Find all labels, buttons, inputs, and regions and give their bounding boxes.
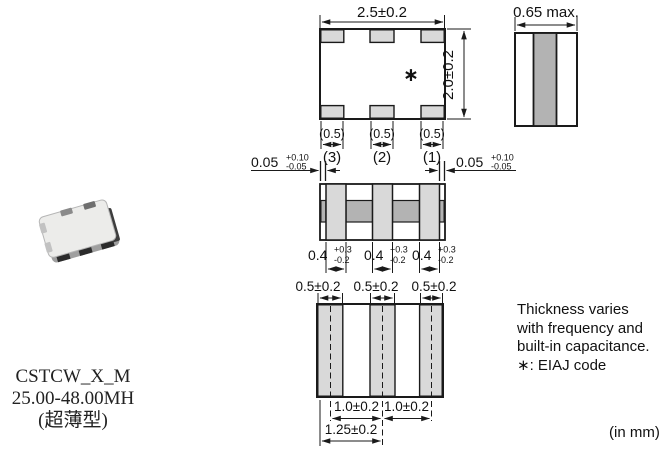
dim-edge-gap-tol-minus: -0.05	[286, 162, 307, 172]
dim-terminal-tol-plus: +0.3	[390, 245, 408, 255]
terminal-electrode	[420, 184, 440, 240]
ceramic-strip	[346, 201, 373, 223]
note-line: Thickness varies	[517, 301, 650, 320]
part-label: CSTCW_X_M 25.00-48.00MH (超薄型)	[0, 366, 146, 432]
bottom-view: 0.5±0.2 0.5±0.2 0.5±0.2 1.0±0.2 1.0±0.2	[296, 279, 457, 446]
dim-edge-to-center: 1.25±0.2	[325, 422, 377, 437]
dim-pitch: 1.0±0.2	[384, 399, 429, 414]
ceramic-strip	[393, 201, 420, 223]
notes-block: Thickness varies with frequency and buil…	[517, 301, 650, 375]
units-note: (in mm)	[609, 424, 660, 441]
dim-land-width: 0.5±0.2	[354, 279, 399, 294]
ceramic-stripe	[534, 33, 557, 126]
dim-pitch: 1.0±0.2	[334, 399, 379, 414]
pad	[421, 30, 444, 43]
dim-terminal-width: 0.4	[412, 247, 432, 263]
dim-width: 2.5±0.2	[357, 4, 407, 21]
land-stripe	[420, 305, 443, 396]
pin-label-2: (2)	[373, 149, 391, 166]
terminal-electrode	[373, 184, 393, 240]
dim-terminal-tol-plus: +0.3	[334, 245, 352, 255]
pin-label-1: (1)	[423, 149, 441, 166]
dim-pad-width: (0.5)	[419, 127, 445, 141]
pad	[321, 30, 344, 43]
dim-edge-gap: 0.05	[456, 154, 483, 170]
pad	[370, 106, 394, 119]
note-line: built-in capacitance.	[517, 338, 650, 357]
dim-edge-gap: 0.05	[251, 154, 278, 170]
part-frequency-range: 25.00-48.00MH	[0, 388, 146, 410]
part-type-note: (超薄型)	[0, 410, 146, 432]
part-name: CSTCW_X_M	[0, 366, 146, 388]
eiaj-code-mark: ∗	[403, 65, 419, 86]
dim-terminal-tol-minus: -0.2	[390, 255, 406, 265]
pad	[321, 106, 344, 119]
dim-terminal-width: 0.4	[308, 247, 328, 263]
dim-height: 2.0±0.2	[440, 50, 457, 100]
dim-pad-width: (0.5)	[319, 127, 345, 141]
datasheet-page: 2.5±0.2 ∗ 2.0±0.2 (0.5) (0.5) (0.5)	[0, 0, 669, 452]
note-line: with frequency and	[517, 320, 650, 339]
dim-pad-width: (0.5)	[369, 127, 395, 141]
dim-terminal-tol-minus: -0.2	[334, 255, 350, 265]
dim-land-width: 0.5±0.2	[412, 279, 457, 294]
note-line: ∗: EIAJ code	[517, 357, 650, 376]
side-view: 0.65 max.	[513, 4, 579, 126]
pad	[370, 30, 394, 43]
dim-terminal-tol-minus: -0.2	[438, 255, 454, 265]
dim-terminal-tol-plus: +0.3	[438, 245, 456, 255]
dim-edge-gap-tol-minus: -0.05	[491, 162, 512, 172]
ceramic-strip	[321, 201, 326, 223]
terminal-electrode	[326, 184, 346, 240]
front-view: 0.05 +0.10 -0.05 0.05 +0.10 -0.05 0.4 +0…	[251, 153, 516, 274]
dim-terminal-width: 0.4	[364, 247, 384, 263]
dim-thickness: 0.65 max.	[513, 4, 579, 21]
dim-land-width: 0.5±0.2	[296, 279, 341, 294]
pad	[421, 106, 444, 119]
top-view: 2.5±0.2 ∗ 2.0±0.2 (0.5) (0.5) (0.5)	[319, 4, 471, 166]
component-photo	[28, 193, 132, 267]
